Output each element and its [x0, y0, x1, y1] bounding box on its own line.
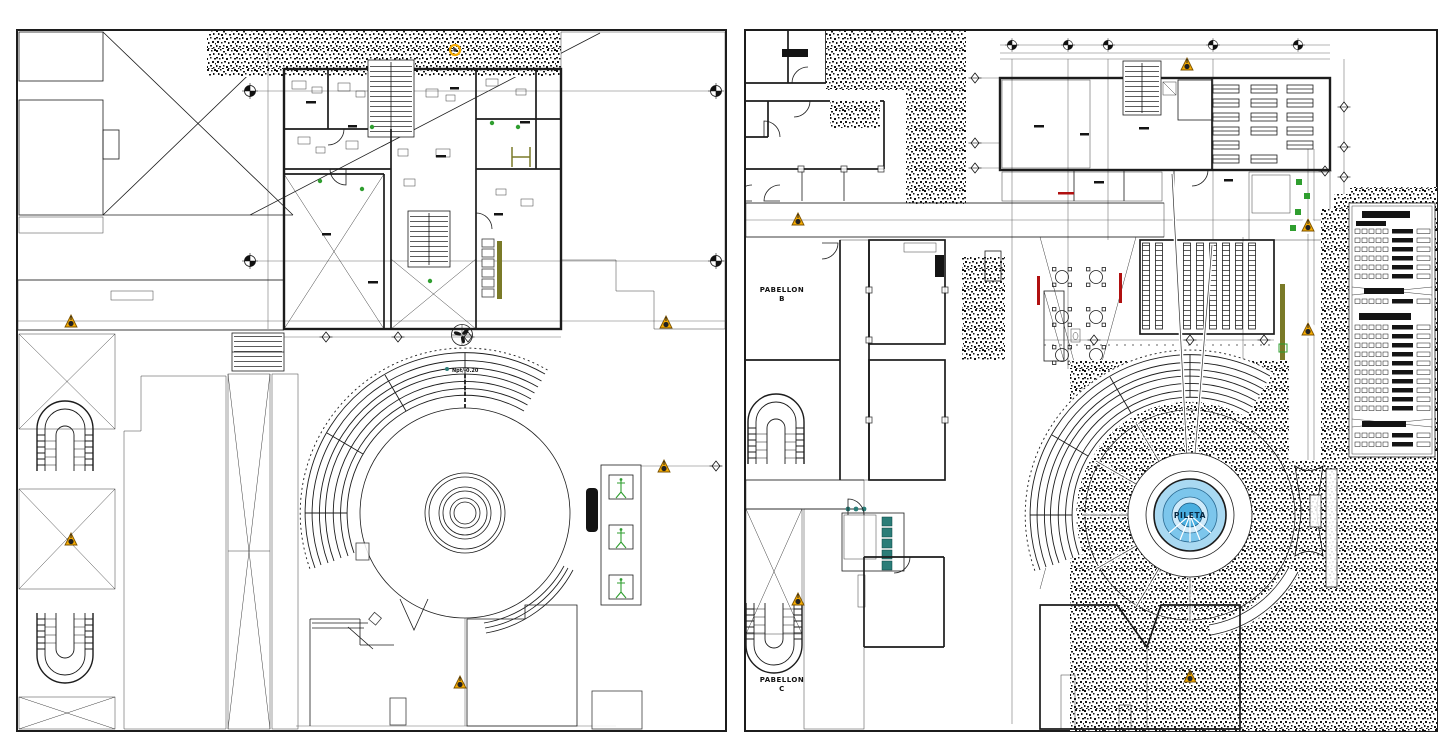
plaza-level-label: Npt/-0.20	[452, 368, 479, 374]
schedule-table	[1349, 203, 1435, 457]
floor-plan-panel: Npt/-0.20	[16, 29, 727, 732]
pabellon-c-label: PABELLON	[760, 676, 805, 684]
pabellon-b-label: PABELLON	[760, 286, 805, 294]
extractor-fan-icon	[452, 325, 473, 346]
site-plan-panel: PABELLON B PABELLON C	[744, 29, 1438, 732]
pabellon-c-letter: C	[779, 685, 785, 693]
planter-strip	[497, 241, 502, 299]
pabellon-b-letter: B	[779, 295, 785, 303]
red-mark	[1058, 192, 1074, 195]
cad-drawing-sheet: Npt/-0.20	[0, 0, 1456, 746]
dotted-bench	[586, 488, 598, 532]
fountain-label: PILETA	[1174, 511, 1206, 520]
